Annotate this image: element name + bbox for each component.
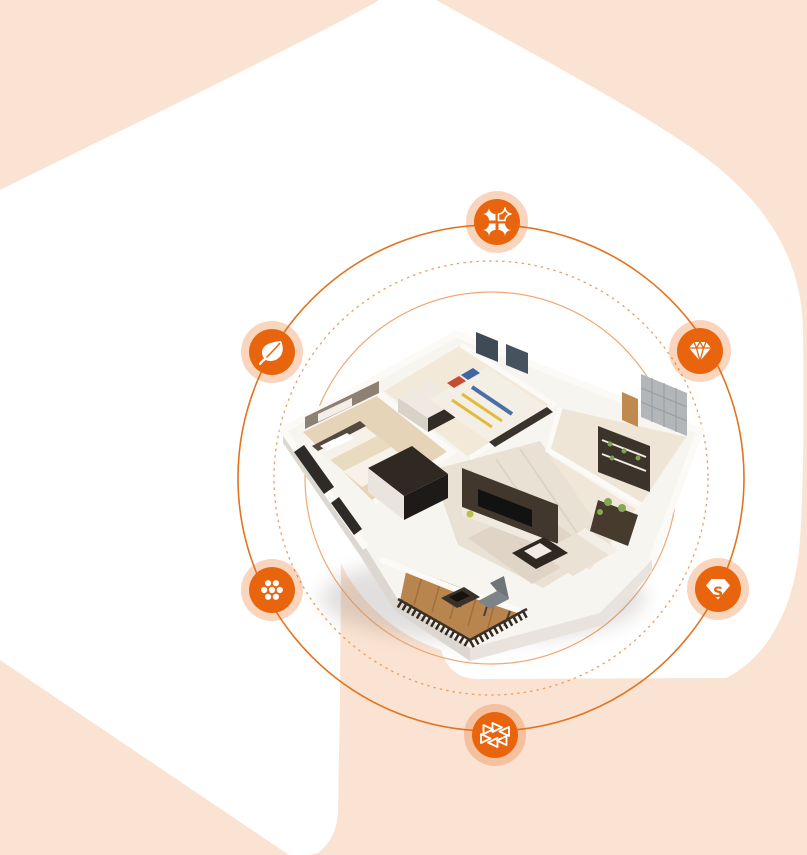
s-gem-icon[interactable]: S: [687, 558, 749, 620]
hero-graphic: S: [0, 0, 807, 855]
dots-cluster-icon[interactable]: [241, 559, 303, 621]
petals-icon[interactable]: [466, 191, 528, 253]
leaf-icon[interactable]: [241, 321, 303, 383]
s-letter: S: [713, 585, 723, 601]
gem-icon[interactable]: [669, 320, 731, 382]
triangle-ring-icon[interactable]: [464, 704, 526, 766]
